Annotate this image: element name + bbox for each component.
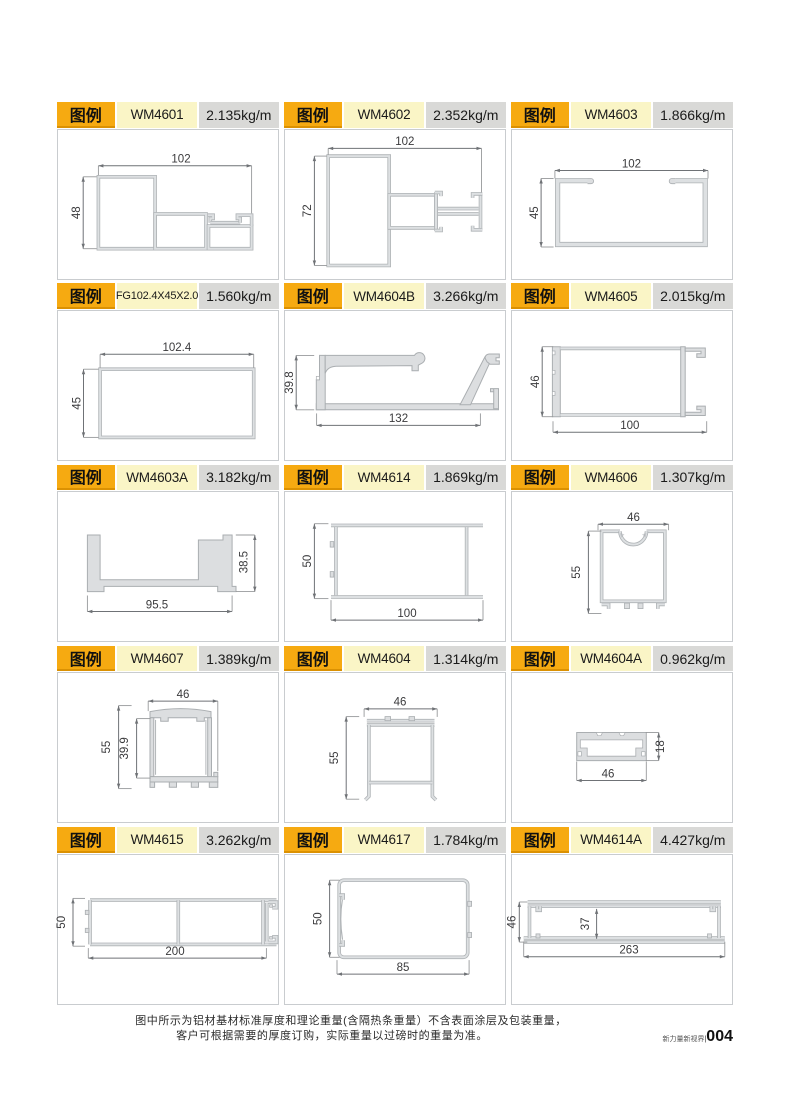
svg-text:55: 55 xyxy=(329,752,341,765)
svg-text:45: 45 xyxy=(71,397,83,410)
svg-text:46: 46 xyxy=(602,768,615,780)
svg-text:50: 50 xyxy=(302,555,314,568)
svg-text:100: 100 xyxy=(620,420,639,432)
svg-text:102: 102 xyxy=(622,158,641,170)
svg-text:132: 132 xyxy=(389,413,408,425)
svg-text:39.9: 39.9 xyxy=(119,737,131,759)
svg-text:102: 102 xyxy=(171,154,190,166)
svg-text:48: 48 xyxy=(71,206,83,219)
svg-text:72: 72 xyxy=(302,204,314,217)
svg-text:200: 200 xyxy=(165,946,184,958)
svg-text:46: 46 xyxy=(627,512,640,524)
svg-text:37: 37 xyxy=(580,917,592,930)
svg-text:46: 46 xyxy=(507,916,519,929)
svg-text:55: 55 xyxy=(571,566,583,579)
svg-text:50: 50 xyxy=(56,916,68,929)
svg-text:100: 100 xyxy=(397,608,416,620)
svg-text:55: 55 xyxy=(101,741,113,754)
svg-text:263: 263 xyxy=(619,945,638,957)
svg-text:45: 45 xyxy=(529,206,541,219)
svg-text:102: 102 xyxy=(395,136,414,148)
svg-text:85: 85 xyxy=(397,962,410,974)
svg-text:46: 46 xyxy=(177,689,190,701)
svg-text:46: 46 xyxy=(394,697,407,709)
svg-text:39.8: 39.8 xyxy=(284,371,296,393)
svg-text:38.5: 38.5 xyxy=(239,551,251,573)
svg-text:95.5: 95.5 xyxy=(146,599,168,611)
svg-text:50: 50 xyxy=(313,912,325,925)
svg-text:46: 46 xyxy=(530,375,542,388)
svg-text:18: 18 xyxy=(655,740,667,753)
svg-text:102.4: 102.4 xyxy=(163,342,192,354)
